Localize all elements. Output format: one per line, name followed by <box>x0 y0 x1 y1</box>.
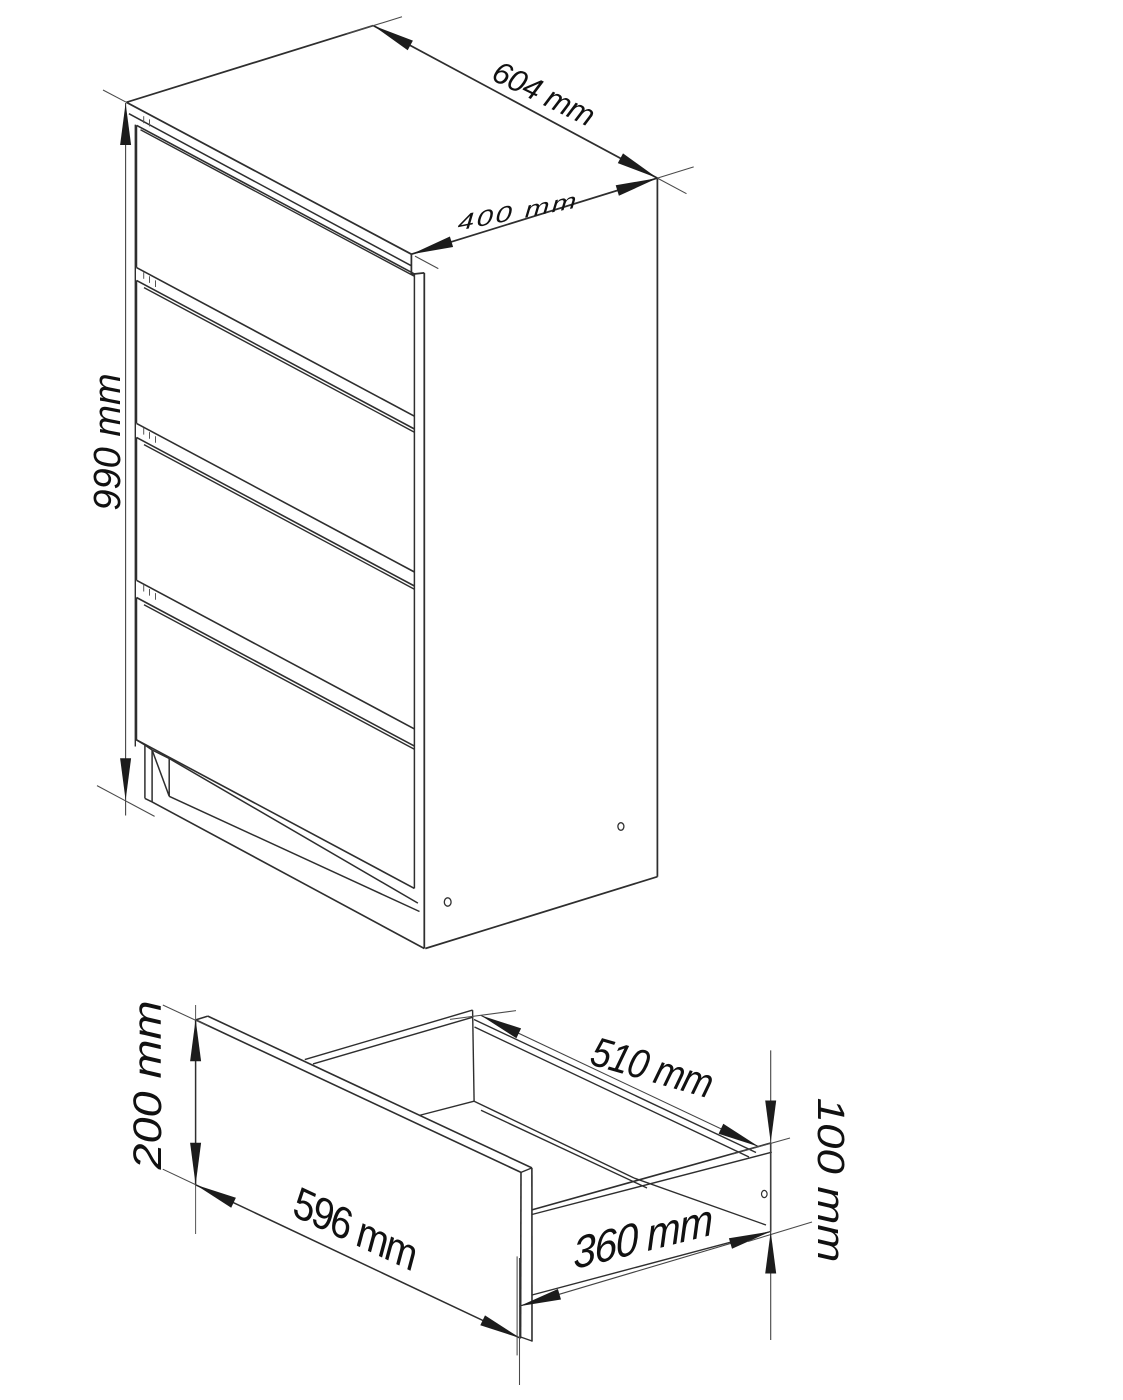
svg-text:990 mm: 990 mm <box>87 373 129 510</box>
svg-text:200 mm: 200 mm <box>126 1000 170 1170</box>
svg-text:100 mm: 100 mm <box>810 1098 853 1263</box>
